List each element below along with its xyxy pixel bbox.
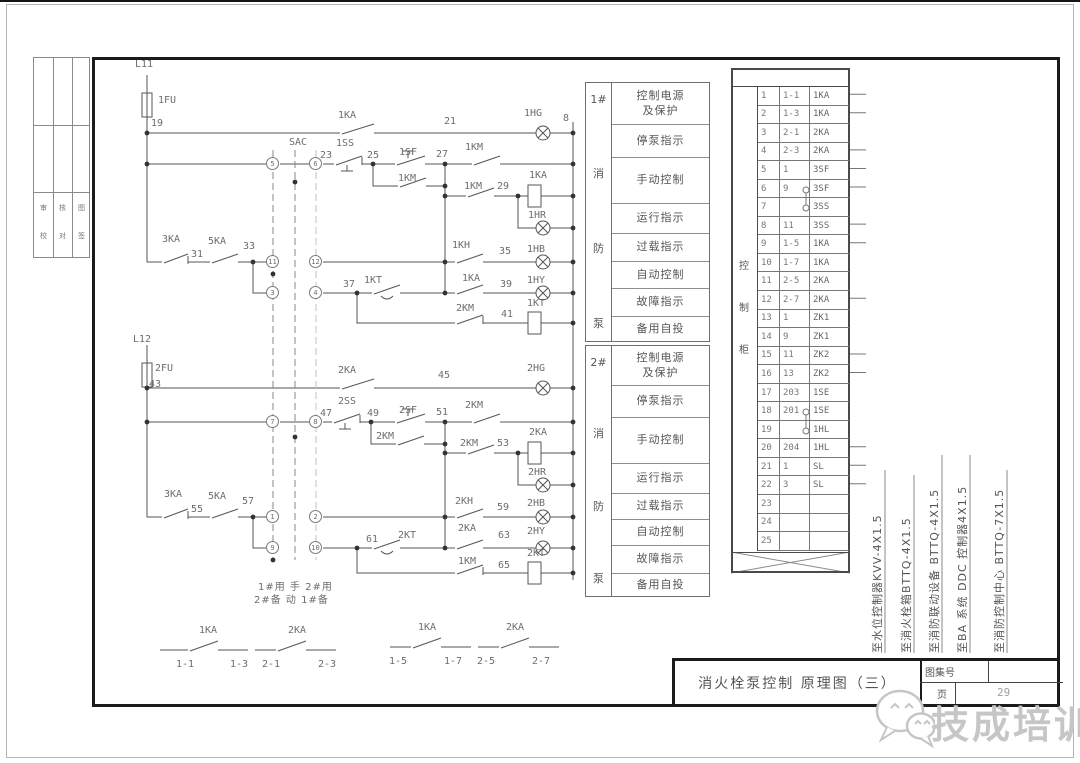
- wire-label: 25: [367, 151, 379, 161]
- wire-label: 2KM: [376, 432, 394, 442]
- pump-id-char: 消: [593, 425, 604, 441]
- title-block: 消火栓泵控制 原理图（三） 图集号 页 29: [672, 658, 1060, 707]
- terminal-cell-wire: 1-1: [780, 87, 810, 106]
- terminal-grid: 11-11KA21-31KA32-12KA42-32KA513SF693SF73…: [757, 87, 849, 551]
- terminal-cell-wire: 3: [780, 476, 810, 495]
- wire-label: 1KA: [199, 626, 217, 636]
- wire-label: 1KM: [458, 557, 476, 567]
- terminal-leads: [850, 94, 866, 484]
- terminal-cell-dev: 3SF: [810, 180, 849, 199]
- panel-pump1-id: 1#消防泵: [586, 83, 612, 341]
- wire-label: 57: [242, 497, 254, 507]
- wire-label: 2HB: [527, 499, 545, 509]
- terminal-cell-wire: 1-5: [780, 235, 810, 254]
- wire-label: 39: [500, 280, 512, 290]
- wire-label: 2KA: [338, 366, 356, 376]
- wire-label: 1-3: [230, 660, 248, 670]
- mode-note-line1: 1#用 手 2#用: [258, 582, 333, 595]
- wire-label: SAC: [289, 138, 307, 148]
- sac-contact-number: 8: [309, 415, 322, 428]
- divider: [920, 682, 1063, 683]
- wire-label: 2KA: [506, 623, 524, 633]
- terminal-cell-no: 2: [758, 106, 780, 125]
- wire-label: 1SF: [399, 148, 417, 158]
- terminal-cell-no: 11: [758, 272, 780, 291]
- cabinet-label-char: 柜: [739, 341, 749, 356]
- wire-label: 1KA: [529, 171, 547, 181]
- terminal-cell-dev: 3SS: [810, 217, 849, 236]
- function-label: 停泵指示: [612, 125, 709, 158]
- terminal-cell-dev: 1KA: [810, 106, 849, 125]
- function-label: 控制电源 及保护: [612, 83, 709, 125]
- sac-contact-number: 3: [266, 286, 279, 299]
- function-label: 手动控制: [612, 418, 709, 464]
- wire-label: 1KM: [464, 182, 482, 192]
- terminal-cell-no: 21: [758, 458, 780, 477]
- terminal-cell-dev: 2KA: [810, 272, 849, 291]
- terminal-cell-no: 17: [758, 384, 780, 403]
- page-label: 页: [937, 686, 947, 701]
- drawing-title: 消火栓泵控制 原理图（三）: [675, 661, 920, 704]
- terminal-cell-dev: ZK1: [810, 328, 849, 347]
- terminal-cell-dev: 2KA: [810, 124, 849, 143]
- terminal-cell-dev: ZK2: [810, 365, 849, 384]
- sac-contact-number: 9: [266, 541, 279, 554]
- function-label: 过载指示: [612, 494, 709, 520]
- pump-id-char: 泵: [593, 570, 604, 586]
- wire-label: 49: [367, 409, 379, 419]
- wire-label: 1HB: [527, 245, 545, 255]
- atlas-number-label: 图集号: [925, 664, 987, 679]
- wire-label: 21: [444, 117, 456, 127]
- terminal-cell-dev: 1KA: [810, 235, 849, 254]
- function-label: 备用自投: [612, 574, 709, 596]
- wire-label: L11: [135, 60, 153, 70]
- mode-note-line2: 2#备 动 1#备: [254, 595, 329, 608]
- terminal-cell-no: 20: [758, 439, 780, 458]
- wire-label: 2-5: [477, 657, 495, 667]
- terminal-cell-wire: 9: [780, 180, 810, 199]
- cable-label: 至消防控制中心 BTTQ-7X1.5: [991, 489, 1007, 653]
- wire-label: 27: [436, 150, 448, 160]
- junction-dots: [145, 131, 576, 576]
- wire-label: 47: [320, 409, 332, 419]
- cabinet-label-char: 制: [739, 299, 749, 314]
- terminal-cell-no: 3: [758, 124, 780, 143]
- cabinet-label: 控制柜: [733, 87, 757, 551]
- terminal-cell-no: 7: [758, 198, 780, 217]
- wire-label: 63: [498, 531, 510, 541]
- wire-label: 1KA: [418, 623, 436, 633]
- terminal-cell-no: 6: [758, 180, 780, 199]
- wire-label: 5KA: [208, 492, 226, 502]
- wire-label: 35: [499, 247, 511, 257]
- wire-label: 55: [191, 505, 203, 515]
- terminal-cell-dev: 3SF: [810, 161, 849, 180]
- wire-label: 53: [497, 439, 509, 449]
- terminal-cell-no: 25: [758, 532, 780, 551]
- wire-label: L12: [133, 335, 151, 345]
- terminal-cell-wire: [780, 532, 810, 551]
- pump-id-char: 防: [593, 498, 604, 514]
- terminal-cell-wire: 2-3: [780, 143, 810, 162]
- function-label: 故障指示: [612, 546, 709, 574]
- wire-label: 3KA: [164, 490, 182, 500]
- page-number: 29: [997, 686, 1010, 699]
- sac-contact-number: 12: [309, 255, 322, 268]
- terminal-table: 控制柜 11-11KA21-31KA32-12KA42-32KA513SF693…: [731, 68, 850, 573]
- wire-label: 2KH: [455, 497, 473, 507]
- divider: [955, 682, 956, 704]
- wire-label: 33: [243, 242, 255, 252]
- sac-contact-number: 11: [266, 255, 279, 268]
- wire-label: 2-3: [318, 660, 336, 670]
- terminal-spare-box: [733, 552, 848, 571]
- function-label: 停泵指示: [612, 386, 709, 418]
- terminal-cell-no: 24: [758, 514, 780, 533]
- wire-label: 1HY: [527, 276, 545, 286]
- wire-label: 1-1: [176, 660, 194, 670]
- cable-label: 至水位控制器KVV-4X1.5: [869, 514, 885, 653]
- terminal-cell-dev: 3SS: [810, 198, 849, 217]
- terminal-cell-no: 1: [758, 87, 780, 106]
- terminal-cell-no: 19: [758, 421, 780, 440]
- wire-label: 2KA: [529, 428, 547, 438]
- function-label: 手动控制: [612, 158, 709, 204]
- terminal-cell-no: 16: [758, 365, 780, 384]
- terminal-cell-no: 13: [758, 310, 780, 329]
- wire-label: 8: [563, 114, 569, 124]
- wire-label: 1-7: [444, 657, 462, 667]
- cabinet-label-char: 控: [739, 257, 749, 272]
- wire-label: 1FU: [158, 96, 176, 106]
- panel-pump2-rows: 控制电源 及保护停泵指示手动控制运行指示过载指示自动控制故障指示备用自投: [612, 346, 709, 596]
- wire-label: 65: [498, 561, 510, 571]
- wire-label: 43: [149, 380, 161, 390]
- terminal-cell-wire: 201: [780, 402, 810, 421]
- terminal-cell-wire: 1: [780, 161, 810, 180]
- wire-label: 2KM: [465, 401, 483, 411]
- wire-label: 41: [501, 310, 513, 320]
- terminal-cell-wire: 1: [780, 310, 810, 329]
- terminal-cell-dev: ZK2: [810, 347, 849, 366]
- panel-pump1-functions: 1#消防泵 控制电源 及保护停泵指示手动控制运行指示过载指示自动控制故障指示备用…: [585, 82, 710, 342]
- wire-label: 2-7: [532, 657, 550, 667]
- terminal-cell-dev: 1KA: [810, 254, 849, 273]
- wire-label: 2SF: [399, 406, 417, 416]
- wire-label: 2SS: [338, 397, 356, 407]
- panel-pump2-id: 2#消防泵: [586, 346, 612, 596]
- terminal-cell-dev: 1SE: [810, 384, 849, 403]
- terminal-cell-wire: 204: [780, 439, 810, 458]
- wire-label: 1SS: [336, 139, 354, 149]
- sac-contact-number: 7: [266, 415, 279, 428]
- terminal-cell-dev: 1HL: [810, 439, 849, 458]
- terminal-cell-dev: SL: [810, 476, 849, 495]
- terminal-cell-wire: 203: [780, 384, 810, 403]
- wire-label: 2HR: [528, 468, 546, 478]
- terminal-cell-dev: 1HL: [810, 421, 849, 440]
- terminal-table-header: [733, 70, 848, 87]
- wire-label: 1KT: [364, 276, 382, 286]
- wire-label: 1KA: [462, 274, 480, 284]
- pump-id-char: 1#: [590, 93, 606, 106]
- terminal-cell-dev: 1SE: [810, 402, 849, 421]
- wire-label: 2KM: [456, 304, 474, 314]
- wire-label: 2HY: [527, 527, 545, 537]
- function-label: 控制电源 及保护: [612, 346, 709, 386]
- wire-label: 2FU: [155, 364, 173, 374]
- pump-id-char: 防: [593, 240, 604, 256]
- panel-pump1-rows: 控制电源 及保护停泵指示手动控制运行指示过载指示自动控制故障指示备用自投: [612, 83, 709, 341]
- terminal-cell-no: 8: [758, 217, 780, 236]
- pump-id-char: 消: [593, 165, 604, 181]
- pump-id-char: 2#: [590, 356, 606, 369]
- sac-contact-number: 4: [309, 286, 322, 299]
- terminal-cell-wire: 2-7: [780, 291, 810, 310]
- terminal-cell-dev: 1KA: [810, 87, 849, 106]
- terminal-cell-wire: 11: [780, 347, 810, 366]
- cable-label: 至BA 系统 DDC 控制器4X1.5: [954, 486, 970, 653]
- function-label: 过载指示: [612, 234, 709, 262]
- terminal-cell-wire: [780, 421, 810, 440]
- wire-label: 29: [497, 182, 509, 192]
- terminal-cell-wire: 1: [780, 458, 810, 477]
- sac-contact-number: 6: [309, 157, 322, 170]
- terminal-cell-wire: [780, 514, 810, 533]
- wire-label: 1-5: [389, 657, 407, 667]
- terminal-cell-no: 12: [758, 291, 780, 310]
- terminal-cell-no: 10: [758, 254, 780, 273]
- wire-label: 37: [343, 280, 355, 290]
- panel-pump2-functions: 2#消防泵 控制电源 及保护停泵指示手动控制运行指示过载指示自动控制故障指示备用…: [585, 345, 710, 597]
- terminal-cell-no: 15: [758, 347, 780, 366]
- function-label: 故障指示: [612, 289, 709, 317]
- wire-label: 2KM: [460, 439, 478, 449]
- wire-label: 2KT: [398, 531, 416, 541]
- terminal-cell-no: 5: [758, 161, 780, 180]
- sac-contact-number: 5: [266, 157, 279, 170]
- pump-id-char: 泵: [593, 315, 604, 331]
- wire-label: 45: [438, 371, 450, 381]
- function-label: 自动控制: [612, 520, 709, 546]
- terminal-cell-dev: 2KA: [810, 143, 849, 162]
- wire-label: 3KA: [162, 235, 180, 245]
- wire-label: 1KH: [452, 241, 470, 251]
- terminal-cell-dev: 2KA: [810, 291, 849, 310]
- wire-label: 31: [191, 250, 203, 260]
- terminal-cell-no: 22: [758, 476, 780, 495]
- wire-label: 61: [366, 535, 378, 545]
- cable-label: 至消火栓箱BTTQ-4X1.5: [898, 517, 914, 653]
- terminal-cell-dev: [810, 495, 849, 514]
- wire-label: 2KA: [288, 626, 306, 636]
- sac-contact-number: 10: [309, 541, 322, 554]
- terminal-cell-dev: SL: [810, 458, 849, 477]
- function-label: 运行指示: [612, 464, 709, 494]
- wire-label: 1HR: [528, 211, 546, 221]
- wire-label: 2HG: [527, 364, 545, 374]
- terminal-cell-no: 4: [758, 143, 780, 162]
- terminal-cell-wire: 11: [780, 217, 810, 236]
- wire-label: 2-1: [262, 660, 280, 670]
- wire-label: 1KT: [527, 299, 545, 309]
- wire-label: 1KA: [338, 111, 356, 121]
- terminal-cell-no: 18: [758, 402, 780, 421]
- sac-contact-number: 2: [309, 510, 322, 523]
- terminal-cell-dev: [810, 532, 849, 551]
- sac-contact-number: 1: [266, 510, 279, 523]
- terminal-cell-wire: [780, 495, 810, 514]
- function-label: 自动控制: [612, 262, 709, 289]
- terminal-cell-wire: 2-5: [780, 272, 810, 291]
- terminal-cell-dev: [810, 514, 849, 533]
- terminal-cell-no: 9: [758, 235, 780, 254]
- wire-label: 1HG: [524, 109, 542, 119]
- divider: [988, 661, 989, 682]
- wire-label: 23: [320, 151, 332, 161]
- cable-label: 至消防联动设备 BTTQ-4X1.5: [926, 489, 942, 653]
- wire-label: 1KM: [398, 174, 416, 184]
- terminal-cell-wire: 9: [780, 328, 810, 347]
- terminal-cell-no: 14: [758, 328, 780, 347]
- function-label: 备用自投: [612, 317, 709, 341]
- terminal-cell-wire: 13: [780, 365, 810, 384]
- terminal-cell-wire: 2-1: [780, 124, 810, 143]
- wire-label: 2KT: [527, 549, 545, 559]
- terminal-cell-no: 23: [758, 495, 780, 514]
- drawing-sheet: 审核图校对签: [0, 0, 1080, 763]
- wire-label: 51: [436, 408, 448, 418]
- wire-label: 1KM: [465, 143, 483, 153]
- wire-label: 59: [497, 503, 509, 513]
- function-label: 运行指示: [612, 204, 709, 234]
- terminal-cell-wire: 1-3: [780, 106, 810, 125]
- terminal-cell-wire: [780, 198, 810, 217]
- wire-label: 2KA: [458, 524, 476, 534]
- terminal-cell-wire: 1-7: [780, 254, 810, 273]
- spare-contacts: [160, 638, 559, 651]
- sac-mechanical-links: [273, 150, 316, 560]
- terminal-cell-dev: ZK1: [810, 310, 849, 329]
- wire-label: 5KA: [208, 237, 226, 247]
- wire-label: 19: [151, 119, 163, 129]
